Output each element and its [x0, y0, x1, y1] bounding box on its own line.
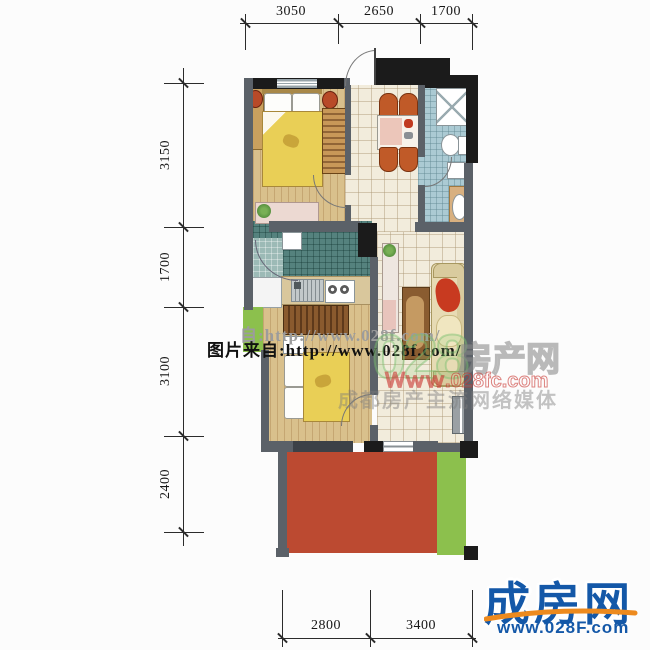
wall-segment — [438, 443, 460, 452]
wall-segment — [415, 222, 470, 232]
wall-segment — [261, 350, 269, 445]
teapot — [404, 119, 413, 128]
plant — [383, 244, 396, 257]
dim-label-bottom-2: 3400 — [401, 618, 441, 634]
wall-segment — [418, 85, 425, 157]
dining-table-mat — [380, 118, 402, 145]
dim-tick — [472, 14, 473, 50]
dim-label-top-3: 1700 — [426, 4, 466, 20]
dim-line-top — [240, 23, 478, 24]
balcony-sliding-door — [383, 441, 415, 452]
dim-label-left-2: 1700 — [158, 242, 174, 292]
stove-burner — [340, 285, 349, 294]
wall-segment — [466, 75, 478, 163]
dining-chair — [399, 147, 418, 172]
plant — [257, 204, 271, 218]
dim-label-top-1: 3050 — [271, 4, 311, 20]
bedside-lamp — [322, 91, 338, 109]
dim-tick — [245, 14, 246, 50]
wall-segment — [364, 441, 383, 452]
dim-tick — [420, 14, 421, 44]
dining-chair — [379, 147, 398, 172]
wall-pillar — [358, 223, 377, 257]
wall-segment — [269, 221, 360, 232]
wall-segment — [244, 78, 253, 310]
site-logo-url: www.028F.com — [497, 618, 629, 638]
wall-segment — [464, 546, 478, 560]
entry-door-leaf — [374, 48, 376, 85]
fridge — [251, 277, 282, 308]
dim-label-left-4: 2400 — [158, 459, 174, 509]
wall-segment — [293, 441, 353, 452]
wall-segment — [345, 85, 351, 175]
dish — [404, 132, 413, 139]
faucet — [294, 282, 301, 289]
wall-segment — [278, 443, 287, 557]
bedroom1-wardrobe — [322, 108, 346, 174]
wall-segment — [276, 548, 289, 557]
terrace-slab — [287, 452, 437, 553]
dim-label-top-2: 2650 — [359, 4, 399, 20]
floorplan-image: 3050 2650 1700 3150 1700 3100 2400 2800 … — [0, 0, 650, 650]
shower — [436, 88, 468, 126]
stove-burner — [328, 285, 337, 294]
sofa-armrest — [433, 263, 465, 278]
wall-segment — [460, 441, 478, 458]
lawn-strip — [437, 450, 466, 555]
wall-segment — [261, 441, 293, 452]
watermark-tagline: 成都房产主流网络媒体 — [338, 384, 558, 413]
window — [277, 79, 317, 88]
dim-label-left-1: 3150 — [158, 130, 174, 180]
dim-label-bottom-1: 2800 — [306, 618, 346, 634]
wall-segment — [413, 441, 438, 452]
dim-tick — [338, 14, 339, 44]
dim-label-left-3: 3100 — [158, 346, 174, 396]
bed-pillow — [284, 387, 305, 419]
dim-line-bottom — [278, 638, 476, 639]
entry-door-arc — [345, 50, 376, 86]
